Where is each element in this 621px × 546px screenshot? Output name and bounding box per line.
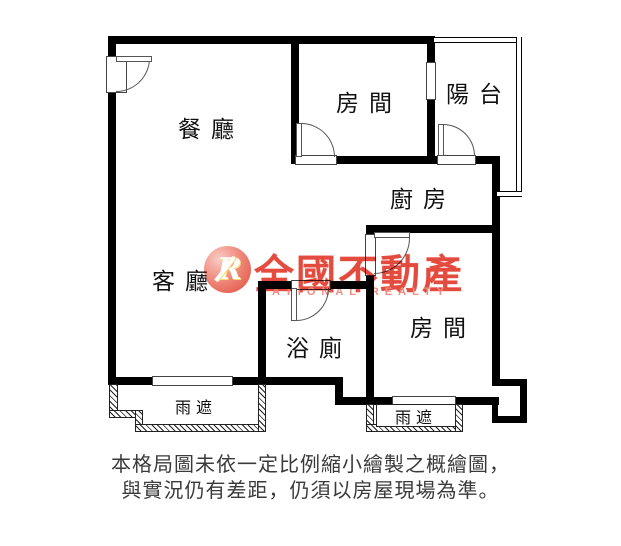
label-bedroom-right: 房間 — [388, 309, 498, 343]
bedroom-right-door-leaf — [374, 232, 410, 238]
canopy-left-edge-s — [135, 424, 265, 432]
wall-top — [108, 36, 434, 44]
label-kitchen: 廚房 — [368, 180, 478, 214]
floor-plan: 餐廳 房間 陽台 廚房 客廳 浴廁 房間 雨遮 雨遮 R 全國不動產 NATIO… — [0, 0, 621, 546]
canopy-left-edge-w — [109, 384, 118, 413]
bedroom-top-door-leaf — [296, 123, 302, 157]
canopy-right-edge-e — [455, 404, 463, 432]
balcony-railing-bottom — [497, 191, 522, 197]
label-dining: 餐廳 — [156, 110, 266, 144]
entrance-door-leaf — [116, 56, 152, 62]
disclaimer-line1: 本格局圖未依一定比例縮小繪製之概繪圖， — [0, 452, 621, 478]
canopy-left-edge-e — [258, 384, 266, 432]
label-bathroom: 浴廁 — [264, 329, 374, 363]
watermark: R 全國不動產 NATIONAL REALTY — [198, 242, 478, 302]
balcony-railing-top — [434, 37, 522, 43]
canopy-right-label-box: 雨遮 — [376, 404, 456, 427]
label-balcony: 陽台 — [424, 75, 534, 109]
balcony-door-frame — [437, 155, 476, 165]
balcony-door-arc — [443, 124, 475, 156]
label-canopy-left: 雨遮 — [166, 394, 226, 418]
bedroom-top-door-arc — [301, 123, 335, 157]
balcony-door-leaf — [438, 124, 444, 156]
label-canopy-right: 雨遮 — [395, 404, 437, 428]
watermark-brand-en: NATIONAL REALTY — [258, 286, 450, 298]
disclaimer: 本格局圖未依一定比例縮小繪製之概繪圖， 與實況仍有差距，仍須以房屋現場為準。 — [0, 452, 621, 504]
balcony-railing-right — [516, 37, 522, 197]
entrance-door-arc — [116, 58, 150, 92]
realty-logo-icon: R — [204, 246, 251, 293]
disclaimer-line2: 與實況仍有差距，仍須以房屋現場為準。 — [0, 478, 621, 504]
wall-notch-left — [492, 397, 498, 423]
label-bedroom-top: 房間 — [314, 84, 424, 118]
window-living — [152, 376, 233, 386]
